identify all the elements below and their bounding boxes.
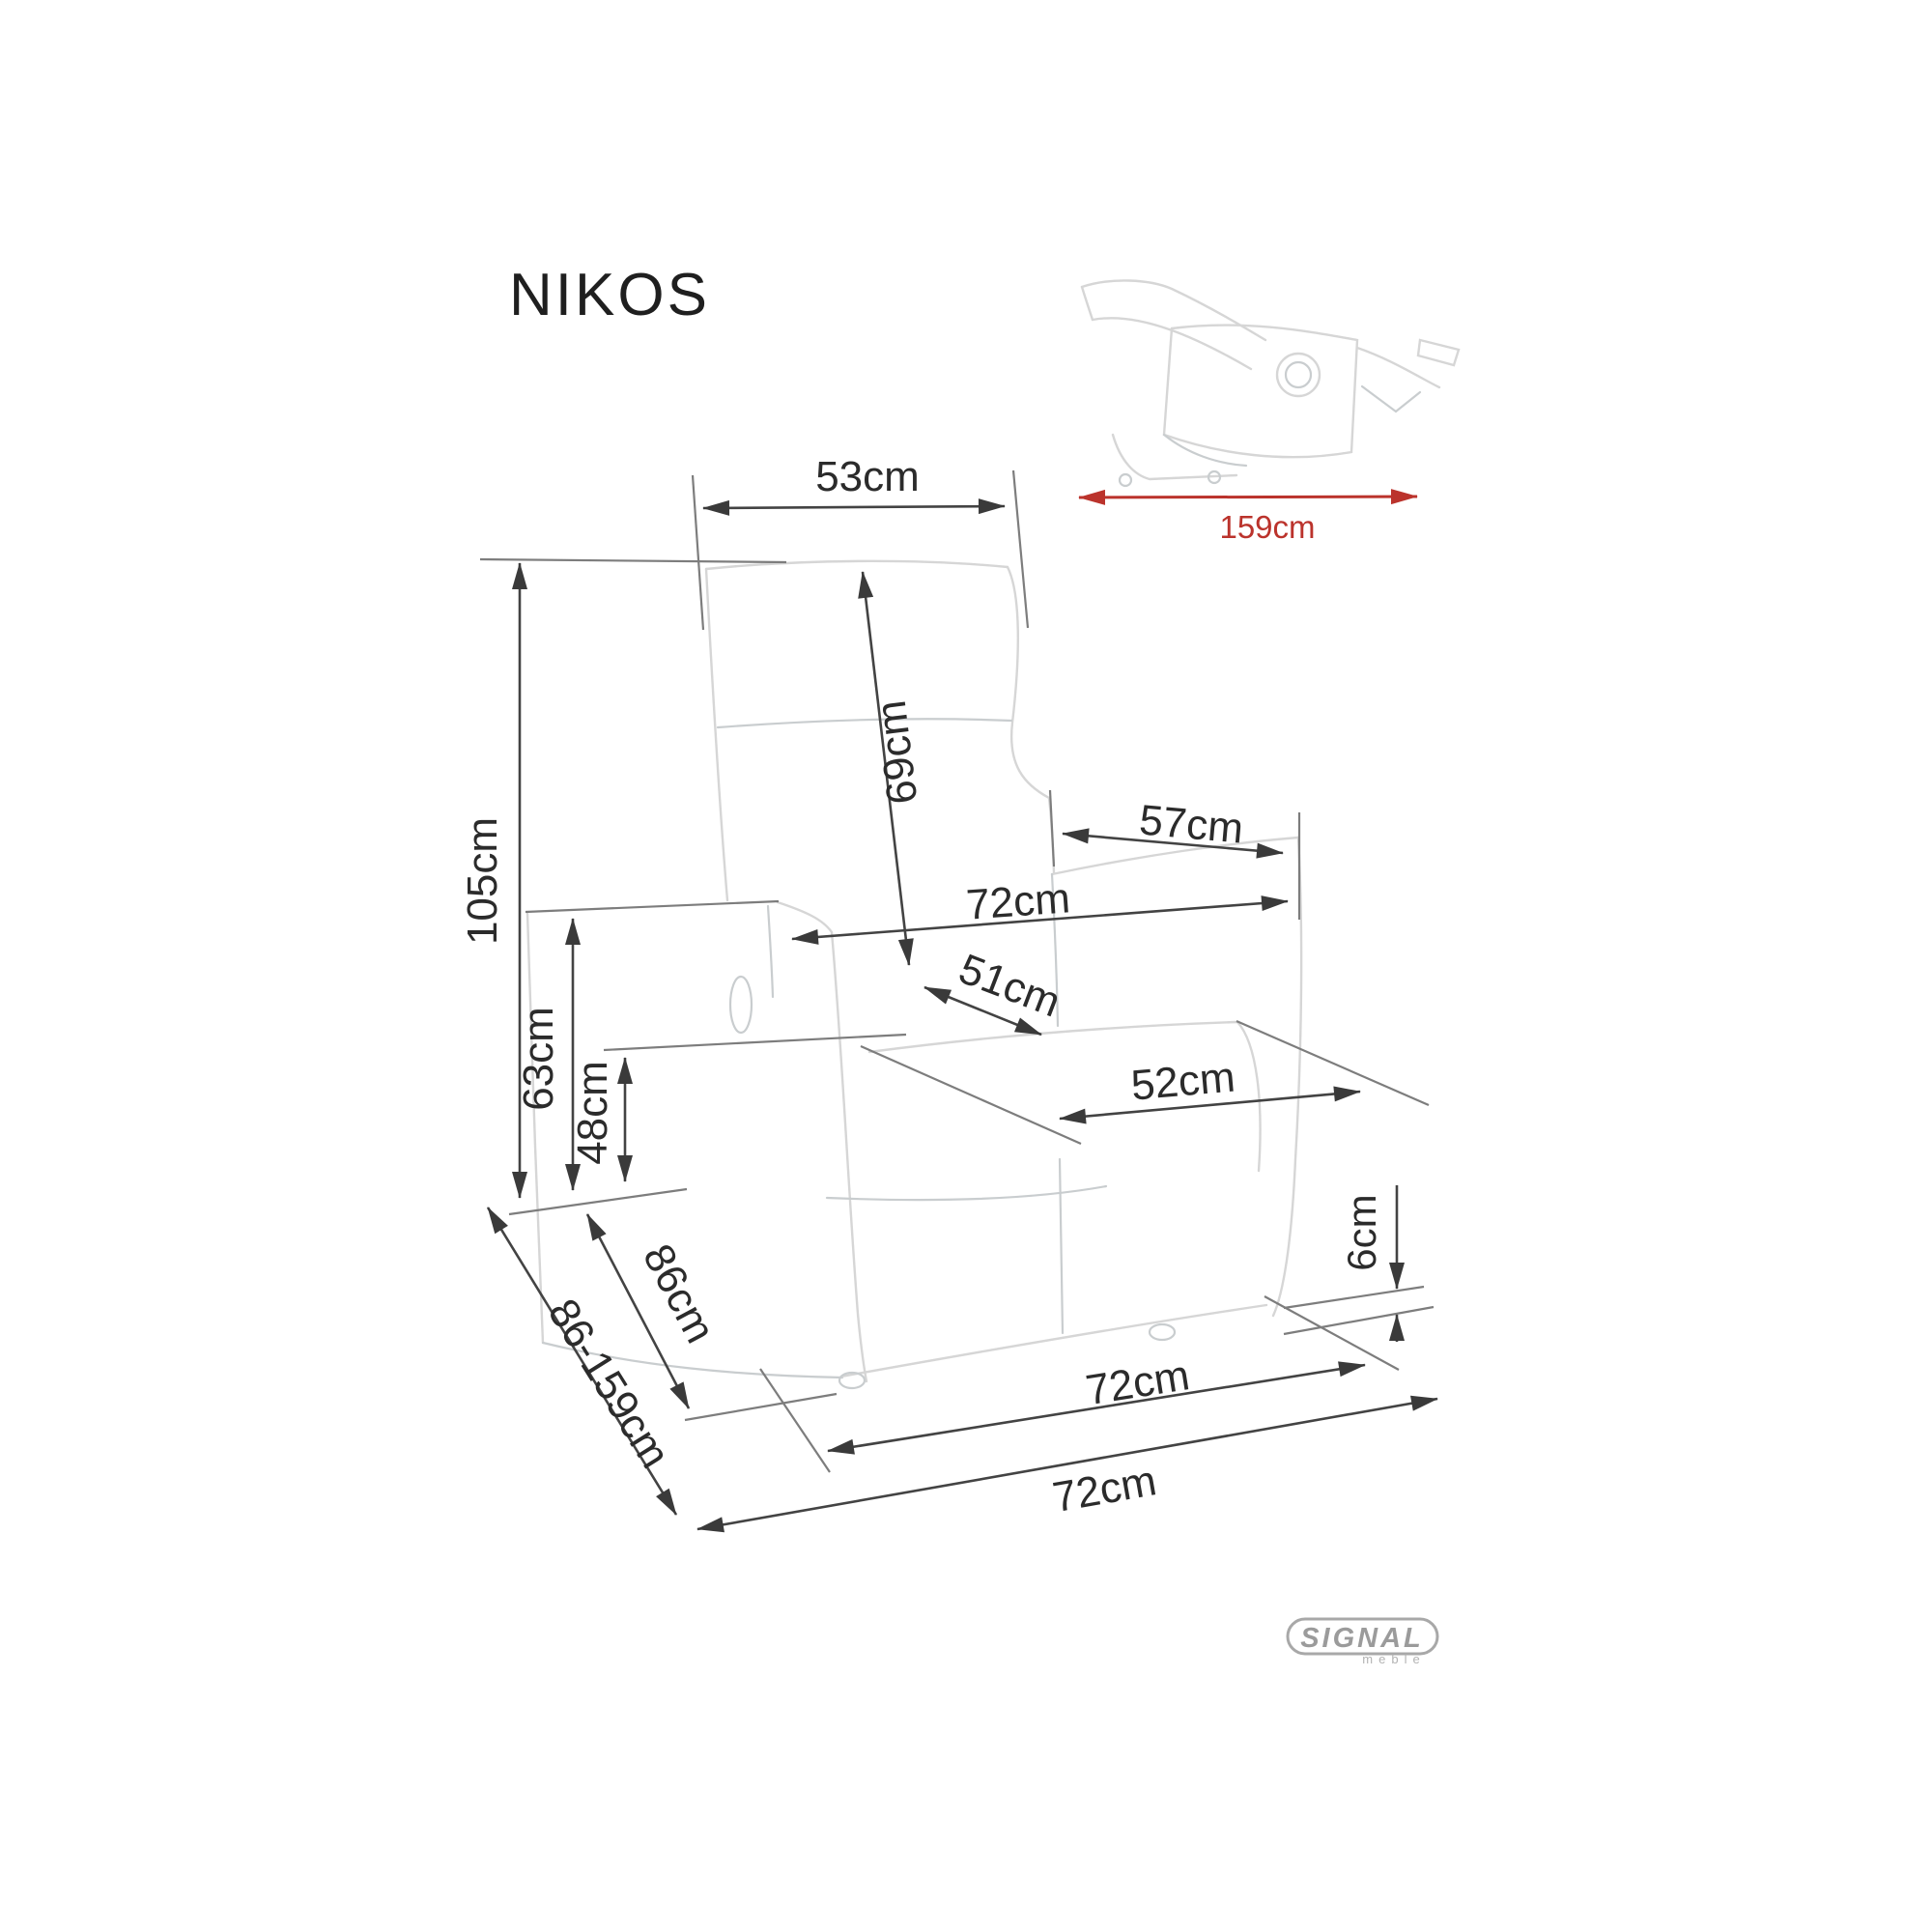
dim-label-159cm: 159cm <box>1219 509 1315 545</box>
extension-lines <box>480 470 1434 1472</box>
dim-label-86-159cm: 86-159cm <box>539 1291 679 1476</box>
reclined-length-dimension: 159cm <box>1079 497 1417 545</box>
logo-sub-text: meble <box>1362 1652 1425 1666</box>
dim-label-69cm: 69cm <box>867 697 927 807</box>
dim-label-52cm: 52cm <box>1129 1053 1236 1109</box>
dim-label-86cm: 86cm <box>634 1236 724 1350</box>
dim-label-51cm: 51cm <box>952 945 1066 1026</box>
logo-brand-text: SIGNAL <box>1300 1623 1424 1654</box>
dim-label-48cm: 48cm <box>569 1061 616 1165</box>
dim-label-105cm: 105cm <box>459 817 506 945</box>
dim-label-72cm-overall: 72cm <box>1049 1457 1159 1521</box>
dim-label-72cm-base: 72cm <box>1083 1351 1193 1414</box>
dimension-diagram-page: 159cm 53cm 69cm 105cm 57cm 72cm 51cm 63c… <box>0 0 1932 1932</box>
dim-label-57cm: 57cm <box>1138 796 1245 852</box>
dim-line-159cm <box>1079 497 1417 497</box>
ghost-chair-reclined-inset <box>1082 280 1459 486</box>
dim-label-72cm-mid: 72cm <box>965 874 1072 928</box>
dim-label-6cm: 6cm <box>1339 1194 1384 1270</box>
dim-label-53cm: 53cm <box>815 453 920 500</box>
page-title: NIKOS <box>509 262 710 328</box>
brand-logo: SIGNAL meble <box>1288 1619 1437 1666</box>
recline-lever <box>730 977 752 1033</box>
diagram-svg: 159cm 53cm 69cm 105cm 57cm 72cm 51cm 63c… <box>0 0 1932 1932</box>
dim-line-53cm <box>703 506 1005 508</box>
dim-label-63cm: 63cm <box>515 1007 562 1111</box>
